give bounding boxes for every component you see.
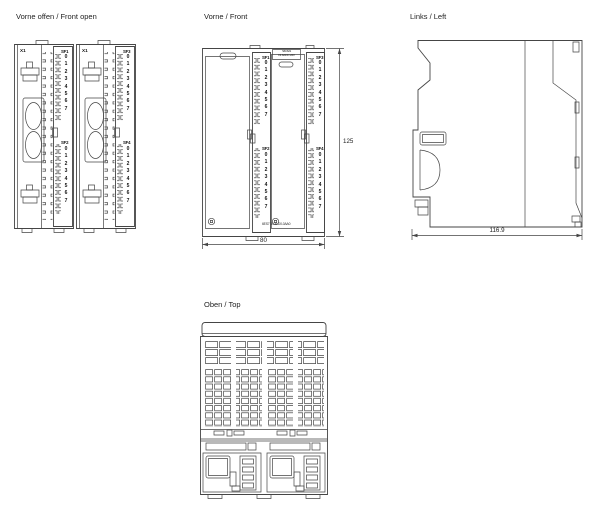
view-top (200, 322, 332, 502)
dimension-height (326, 49, 344, 237)
left-profile (413, 41, 582, 228)
led-channel-numbers: 0 1 2 3 4 5 6 7 (317, 60, 323, 119)
led-channel-numbers: 0 1 2 3 4 5 6 7 (63, 54, 69, 113)
front-open-title: Vorne offen / Front open (16, 12, 97, 21)
led-channel-numbers: 0 1 2 3 4 5 6 7 (63, 146, 69, 205)
side-slot (575, 157, 579, 168)
view-front: SF1 0 1 2 3 4 5 6 7 SF2 0 1 2 3 4 5 6 7 … (202, 44, 362, 254)
dimension-depth-value: 116.9 (406, 227, 588, 234)
view-left: 116.9 (406, 38, 598, 244)
mounting-screw (208, 218, 214, 224)
front-title: Vorne / Front (204, 12, 247, 21)
type-label-line2: DI 32xDC 24V (273, 54, 301, 58)
top-title: Oben / Top (204, 300, 241, 309)
connector-bay-2 (267, 443, 325, 492)
led-column-bottom (55, 144, 61, 214)
side-slot (575, 102, 579, 113)
left-door (206, 57, 250, 229)
view-front-open: X1 X1 SF1 0 1 2 3 4 5 6 7 SF2 0 1 2 3 4 … (14, 40, 140, 240)
bottom-latch (21, 185, 39, 203)
top-view-drawing (200, 322, 332, 502)
foot (257, 495, 271, 499)
led-group-label: SF4 (123, 140, 130, 145)
dimension-width-value: 80 (202, 237, 325, 244)
left-title: Links / Left (410, 12, 446, 21)
connector-label-x1: X1 (82, 48, 88, 53)
led-channel-numbers: 0 1 2 3 4 5 6 7 (125, 54, 131, 113)
foot (572, 216, 581, 227)
led-channel-numbers: 0 1 2 3 4 5 6 7 (317, 152, 323, 211)
rail-latch (415, 200, 428, 215)
connector-label-x1: X1 (20, 48, 26, 53)
foot (84, 229, 94, 233)
led-group-label: SF2 (61, 140, 68, 145)
led-column-top (117, 52, 123, 122)
middle-door (272, 55, 305, 229)
top-housing (201, 323, 328, 499)
led-group-label: SF4 (316, 146, 323, 151)
foot (208, 495, 222, 499)
vent-slots (205, 341, 324, 427)
bus-connector (420, 132, 446, 145)
wiring-ovals (85, 98, 106, 162)
led-channel-numbers: 0 1 2 3 4 5 6 7 (125, 146, 131, 205)
separator-band (201, 430, 328, 442)
bottom-latch (83, 185, 101, 203)
top-latch (21, 62, 39, 81)
front-open-drawing (14, 40, 140, 240)
door-handle-slot (220, 53, 236, 59)
dimensional-drawing-page: { "drawing": { "line_color": "#454545", … (0, 0, 600, 515)
led-column-top (55, 52, 61, 122)
foot (116, 229, 126, 233)
foot (22, 229, 32, 233)
left-side-drawing (406, 38, 598, 244)
led-group-label: SF2 (262, 146, 269, 151)
wiring-ovals (23, 98, 44, 162)
connector-bay-1 (203, 443, 261, 492)
led-channel-numbers: 0 1 2 3 4 5 6 7 (263, 60, 269, 119)
door-handle-slot (279, 62, 293, 67)
housing-bulge (420, 150, 440, 190)
order-number: 6ES7 14-4LD0-0AA0 (262, 222, 290, 226)
led-channel-numbers: 0 1 2 3 4 5 6 7 (263, 152, 269, 211)
foot (54, 229, 64, 233)
dimension-height-value: 125 (343, 138, 353, 145)
foot (306, 495, 320, 499)
top-latch (83, 62, 101, 81)
led-column-bottom (117, 144, 123, 214)
top-header (202, 323, 326, 337)
